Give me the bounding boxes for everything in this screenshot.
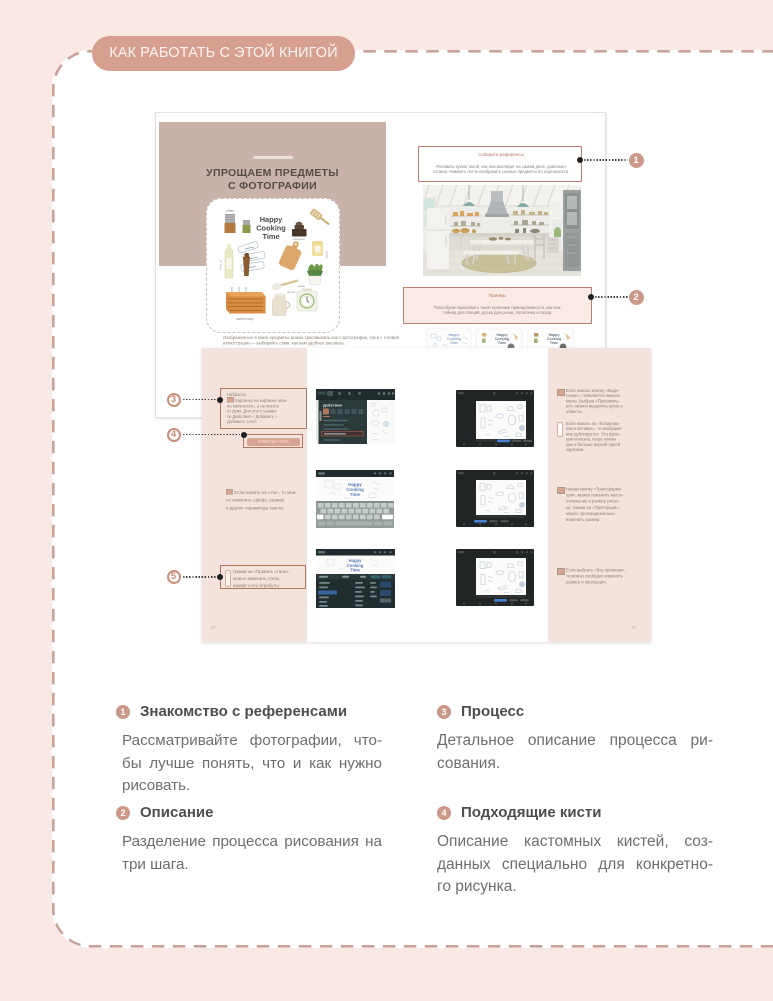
- svg-text:espresso: espresso: [293, 237, 306, 241]
- svg-text:Time: Time: [550, 341, 558, 345]
- svg-text:spoon: spoon: [287, 290, 296, 294]
- svg-text:Time: Time: [450, 341, 458, 345]
- svg-text:sugar: sugar: [325, 251, 329, 259]
- svg-text:Time: Time: [350, 492, 361, 497]
- svg-text:Действия: Действия: [323, 403, 343, 408]
- svg-text:coffee: coffee: [226, 209, 235, 213]
- svg-text:Time: Time: [350, 568, 360, 573]
- svg-text:sweet basky: sweet basky: [236, 317, 254, 321]
- svg-text:Time: Time: [498, 341, 506, 345]
- svg-text:olive oil: olive oil: [219, 260, 223, 270]
- svg-text:scale: scale: [298, 284, 305, 288]
- svg-text:Time: Time: [262, 232, 279, 241]
